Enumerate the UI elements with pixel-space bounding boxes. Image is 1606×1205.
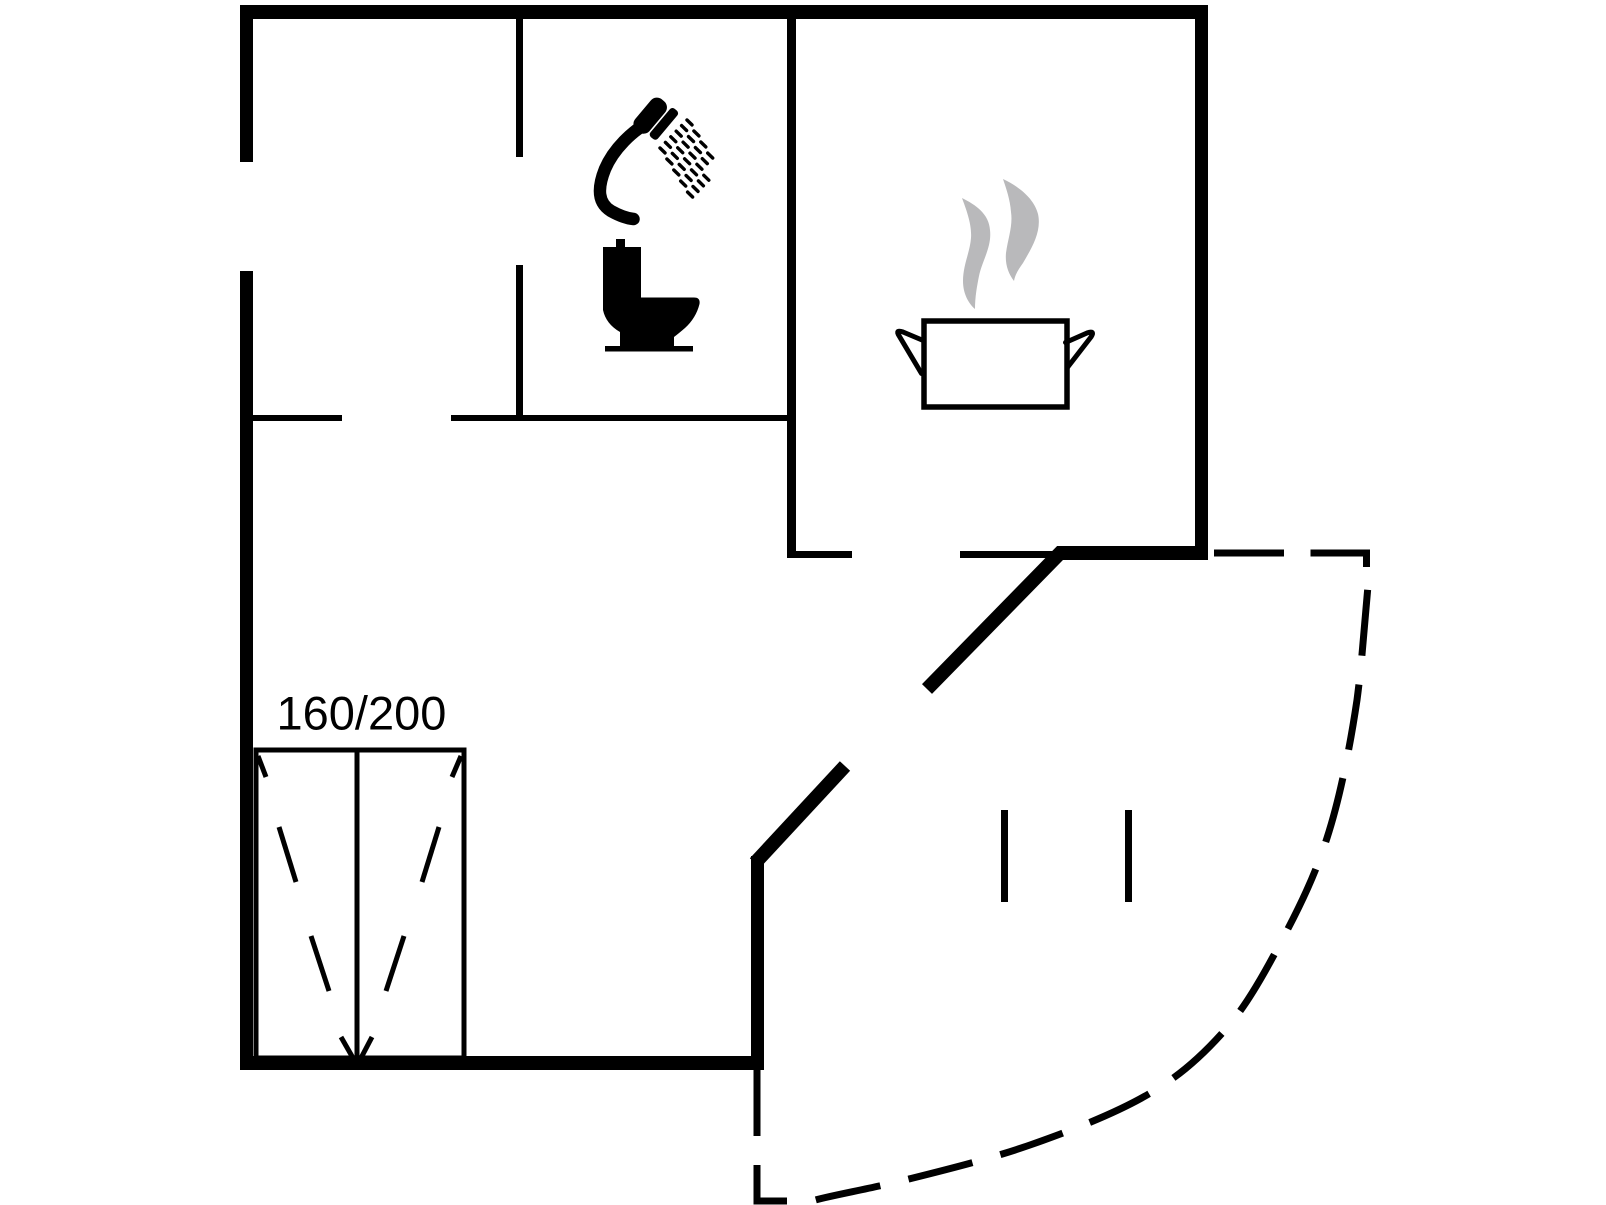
svg-text:160/200: 160/200 (277, 687, 447, 740)
